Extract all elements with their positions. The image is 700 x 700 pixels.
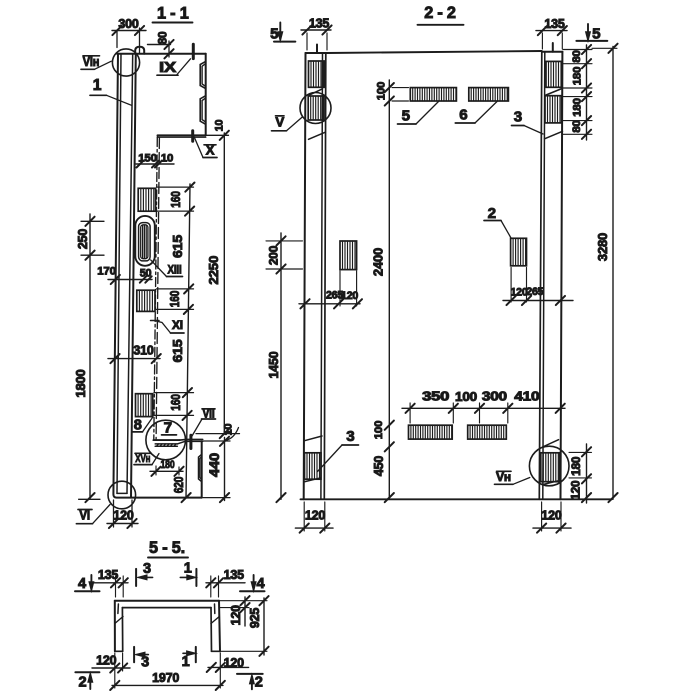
svg-text:XVн: XVн: [135, 453, 150, 465]
svg-text:120: 120: [510, 286, 527, 298]
svg-text:2: 2: [79, 674, 87, 690]
svg-text:615: 615: [170, 340, 185, 363]
svg-text:100: 100: [375, 82, 387, 100]
svg-text:120: 120: [569, 480, 583, 500]
svg-text:1450: 1450: [267, 351, 281, 378]
svg-text:50: 50: [140, 267, 152, 279]
svg-text:1 - 1: 1 - 1: [157, 4, 189, 22]
svg-text:2: 2: [255, 674, 263, 690]
svg-text:135: 135: [544, 17, 565, 31]
svg-text:2: 2: [488, 205, 496, 222]
svg-text:4: 4: [257, 576, 266, 592]
svg-text:V: V: [276, 114, 285, 129]
svg-text:440: 440: [207, 453, 222, 477]
svg-text:1800: 1800: [73, 369, 88, 397]
svg-text:120: 120: [224, 656, 245, 670]
svg-text:2 - 2: 2 - 2: [424, 4, 456, 22]
svg-text:135: 135: [309, 16, 330, 30]
svg-text:120: 120: [113, 508, 134, 522]
svg-text:100: 100: [455, 390, 477, 404]
svg-text:Vн: Vн: [496, 470, 511, 484]
svg-text:4: 4: [78, 576, 87, 592]
svg-text:450: 450: [372, 456, 386, 477]
svg-text:IX: IX: [159, 60, 177, 76]
svg-text:80: 80: [571, 50, 583, 62]
svg-text:1: 1: [182, 654, 190, 670]
svg-text:160: 160: [167, 291, 182, 308]
svg-text:410: 410: [514, 389, 539, 403]
svg-text:180: 180: [161, 459, 175, 471]
svg-text:3280: 3280: [595, 233, 610, 261]
svg-text:VI: VI: [79, 508, 90, 522]
svg-text:135: 135: [224, 568, 245, 582]
svg-text:265: 265: [526, 286, 543, 298]
svg-text:80: 80: [571, 120, 583, 132]
svg-text:2250: 2250: [206, 256, 221, 285]
svg-text:10: 10: [161, 153, 173, 165]
svg-text:6: 6: [459, 107, 467, 124]
svg-text:180: 180: [572, 98, 584, 116]
svg-text:300: 300: [482, 389, 507, 403]
svg-text:VII: VII: [203, 406, 215, 420]
svg-text:170: 170: [97, 266, 115, 278]
svg-text:160: 160: [168, 191, 183, 208]
svg-text:120: 120: [96, 653, 117, 667]
svg-text:120: 120: [341, 290, 358, 302]
svg-text:5: 5: [402, 108, 411, 125]
svg-text:XIII: XIII: [168, 263, 182, 277]
svg-text:1: 1: [184, 561, 192, 577]
svg-text:3: 3: [346, 428, 354, 445]
svg-text:180: 180: [572, 67, 584, 85]
svg-text:5 - 5.: 5 - 5.: [149, 539, 185, 557]
svg-text:120: 120: [541, 508, 562, 522]
svg-text:160: 160: [168, 394, 183, 411]
svg-text:7: 7: [164, 419, 172, 436]
svg-text:2400: 2400: [371, 248, 386, 276]
svg-text:100: 100: [373, 421, 385, 439]
svg-text:1: 1: [93, 77, 102, 94]
svg-text:310: 310: [133, 343, 154, 357]
svg-text:350: 350: [422, 389, 449, 403]
svg-text:925: 925: [248, 608, 262, 629]
svg-text:615: 615: [170, 235, 185, 258]
svg-text:X: X: [206, 142, 215, 157]
svg-text:620: 620: [171, 477, 186, 494]
svg-text:80: 80: [155, 31, 169, 44]
svg-text:120: 120: [305, 508, 326, 522]
svg-text:150: 150: [138, 153, 156, 165]
svg-text:XI: XI: [172, 318, 183, 332]
svg-text:135: 135: [98, 568, 119, 582]
svg-text:10: 10: [213, 120, 225, 132]
svg-text:300: 300: [118, 17, 139, 31]
svg-text:120: 120: [229, 605, 243, 626]
svg-text:5: 5: [270, 26, 279, 43]
svg-text:180: 180: [569, 456, 583, 476]
svg-text:250: 250: [76, 229, 90, 250]
svg-text:200: 200: [267, 245, 281, 265]
svg-text:1970: 1970: [152, 671, 179, 685]
svg-text:VIн: VIн: [83, 55, 100, 69]
svg-text:10: 10: [222, 424, 234, 436]
svg-text:3: 3: [514, 109, 522, 126]
